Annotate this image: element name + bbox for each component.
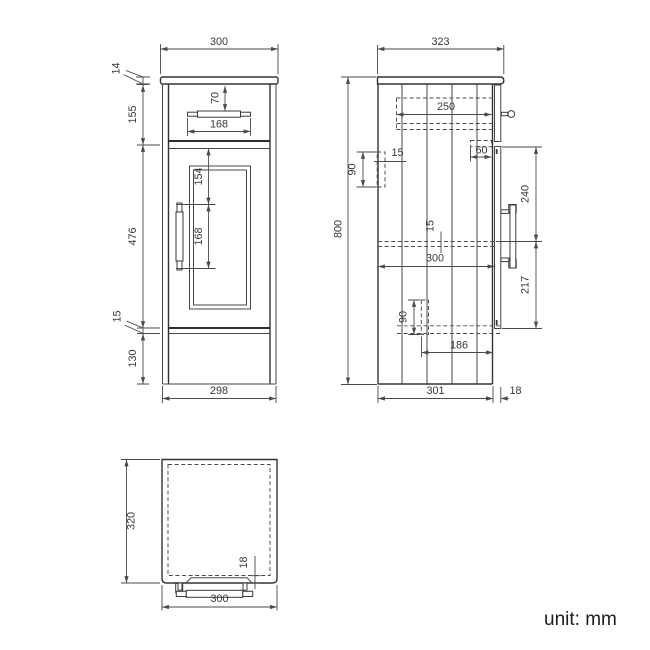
dim-front-door-height: 476 [127,227,139,245]
dim-plinth-setback: 186 [450,340,468,352]
front-door-handle [176,203,183,270]
drawer-knob-stem [501,112,508,115]
dim-front-plinth-height: 130 [127,349,139,367]
drawer-handle-right-cap [241,112,251,116]
top-handle-post-left [178,583,182,590]
dim-top-overall-depth: 320 [126,512,138,530]
front-view: 300 14 155 476 15 130 298 70 168 [111,36,279,403]
dim-drawer-handle-offset: 70 [210,92,222,104]
drawing-canvas: 300 14 155 476 15 130 298 70 168 [0,0,650,650]
dim-side-handle-bottom-offset: 217 [520,276,532,294]
dim-door-handle-length: 168 [193,227,205,245]
drawer-handle-bar [198,111,241,117]
side-view: 323 800 250 90 15 60 15 300 [333,36,543,403]
dim-side-handle-top-offset: 240 [520,185,532,203]
side-door-hinge-bottom [496,320,498,325]
drawer-knob-cap [508,111,515,118]
dim-wall-rail-thickness: 15 [391,147,403,159]
side-hidden-lines [377,98,501,335]
top-countertop-outline [162,460,277,584]
side-door-handle-post-bottom [501,258,509,262]
dim-wall-rail-height: 90 [347,163,359,175]
side-door-handle-post-top [501,210,509,214]
top-view: 320 18 300 [121,460,277,611]
dim-drawer-depth: 250 [437,101,455,113]
dim-front-worktop-thickness: 14 [111,62,123,74]
dim-door-handle-top-offset: 154 [193,167,205,185]
side-door [495,147,501,329]
side-knob [501,111,514,118]
dim-front-drawer-height: 155 [127,105,139,123]
side-door-handle-bar [510,205,516,268]
side-door-handle [501,205,516,269]
side-countertop [378,77,504,84]
unit-label: unit: mm [544,609,617,630]
top-handle-post-right [243,583,247,590]
dim-side-overall-height: 800 [333,220,345,238]
side-plinth-hidden [397,326,501,334]
top-handle-plate [186,578,252,583]
top-carcass [162,460,277,584]
dim-drawer-handle-width: 168 [210,119,228,131]
top-dimensions: 320 18 300 [121,460,277,611]
dim-side-overall-depth: 323 [431,36,449,48]
technical-drawing: 300 14 155 476 15 130 298 70 168 [0,0,650,650]
door-handle-bar [176,212,183,261]
front-drawer-handle [188,111,251,117]
top-handle-cap-left [176,591,186,596]
dim-top-door-thickness: 18 [238,556,250,568]
dim-drawer-runner-depth: 60 [475,145,487,157]
dim-carcass-depth: 301 [426,385,444,397]
side-drawer-front [495,85,501,142]
dim-front-overall-width: 300 [210,36,228,48]
top-handle-cap-right [243,591,253,596]
dim-front-bottom-gap: 15 [112,310,124,322]
dim-bottom-rail-height: 90 [398,311,410,323]
front-dimensions: 300 14 155 476 15 130 298 70 168 [111,36,279,403]
dim-front-carcass-width: 298 [210,385,228,397]
drawer-handle-left-cap [188,112,198,116]
dim-top-overall-width: 300 [210,593,228,605]
dim-internal-depth: 300 [426,253,444,265]
dim-side-door-thickness: 18 [509,385,521,397]
front-countertop [161,77,279,84]
dim-shelf-thickness: 15 [425,220,437,232]
side-door-hinge-top [496,149,498,154]
